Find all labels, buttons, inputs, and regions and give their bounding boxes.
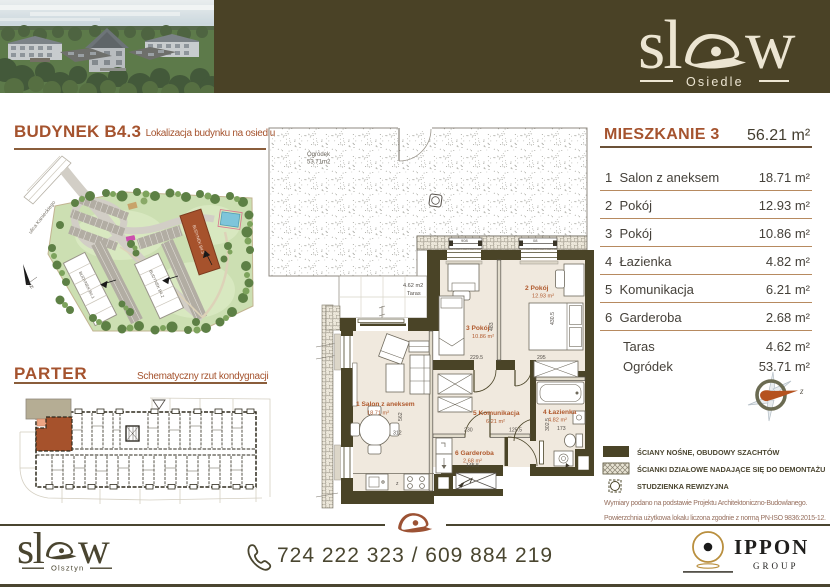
svg-text:12.93 m²: 12.93 m² xyxy=(532,294,554,300)
svg-text:z: z xyxy=(799,386,804,396)
svg-text:4 Łazienka: 4 Łazienka xyxy=(543,409,577,416)
svg-text:w: w xyxy=(745,7,796,84)
svg-text:312: 312 xyxy=(393,431,402,437)
svg-text:Osiedle: Osiedle xyxy=(686,75,744,89)
svg-text:ŚCIANKI DZIAŁOWE NADAJĄCE SIĘ: ŚCIANKI DZIAŁOWE NADAJĄCE SIĘ DO DEMONTA… xyxy=(637,465,825,474)
svg-text:562: 562 xyxy=(398,412,404,421)
svg-text:3 Pokój: 3 Pokój xyxy=(466,325,490,332)
svg-text:sl: sl xyxy=(17,524,45,573)
svg-text:173: 173 xyxy=(557,426,566,432)
svg-text:6.21 m²: 6.21 m² xyxy=(486,419,505,425)
svg-text:6 Garderoba: 6 Garderoba xyxy=(455,450,494,457)
svg-text:53.71m2: 53.71m2 xyxy=(307,160,331,166)
svg-text:18.71 m²: 18.71 m² xyxy=(367,411,389,417)
svg-text:908: 908 xyxy=(461,238,468,243)
svg-text:IPPON: IPPON xyxy=(734,535,809,559)
svg-text:125.5: 125.5 xyxy=(509,428,522,434)
svg-text:302.5: 302.5 xyxy=(545,418,551,431)
svg-text:229.5: 229.5 xyxy=(470,355,483,361)
svg-text:1 Salon z aneksem: 1 Salon z aneksem xyxy=(356,401,415,408)
svg-text:N: N xyxy=(29,283,36,290)
svg-text:STUDZIENKA REWIZYJNA: STUDZIENKA REWIZYJNA xyxy=(637,482,729,491)
svg-text:230: 230 xyxy=(464,428,473,434)
svg-text:5 Komunikacja: 5 Komunikacja xyxy=(473,410,520,417)
svg-text:295: 295 xyxy=(537,355,546,361)
svg-text:145.5: 145.5 xyxy=(466,463,479,469)
svg-text:ŚCIANY NOŚNE, OBUDOWY SZACHTÓW: ŚCIANY NOŚNE, OBUDOWY SZACHTÓW xyxy=(637,448,780,457)
svg-text:4.62 m2: 4.62 m2 xyxy=(403,283,423,289)
svg-text:10.86 m²: 10.86 m² xyxy=(472,334,494,340)
svg-text:Taras: Taras xyxy=(407,291,421,297)
svg-text:483: 483 xyxy=(489,322,495,331)
svg-text:Olsztyn: Olsztyn xyxy=(51,564,84,573)
svg-text:sl: sl xyxy=(638,7,682,84)
svg-text:08: 08 xyxy=(533,238,538,243)
svg-text:GROUP: GROUP xyxy=(753,561,799,571)
svg-text:430.5: 430.5 xyxy=(550,312,556,325)
svg-text:Ogródek: Ogródek xyxy=(307,152,331,158)
svg-text:2 Pokój: 2 Pokój xyxy=(525,285,549,292)
